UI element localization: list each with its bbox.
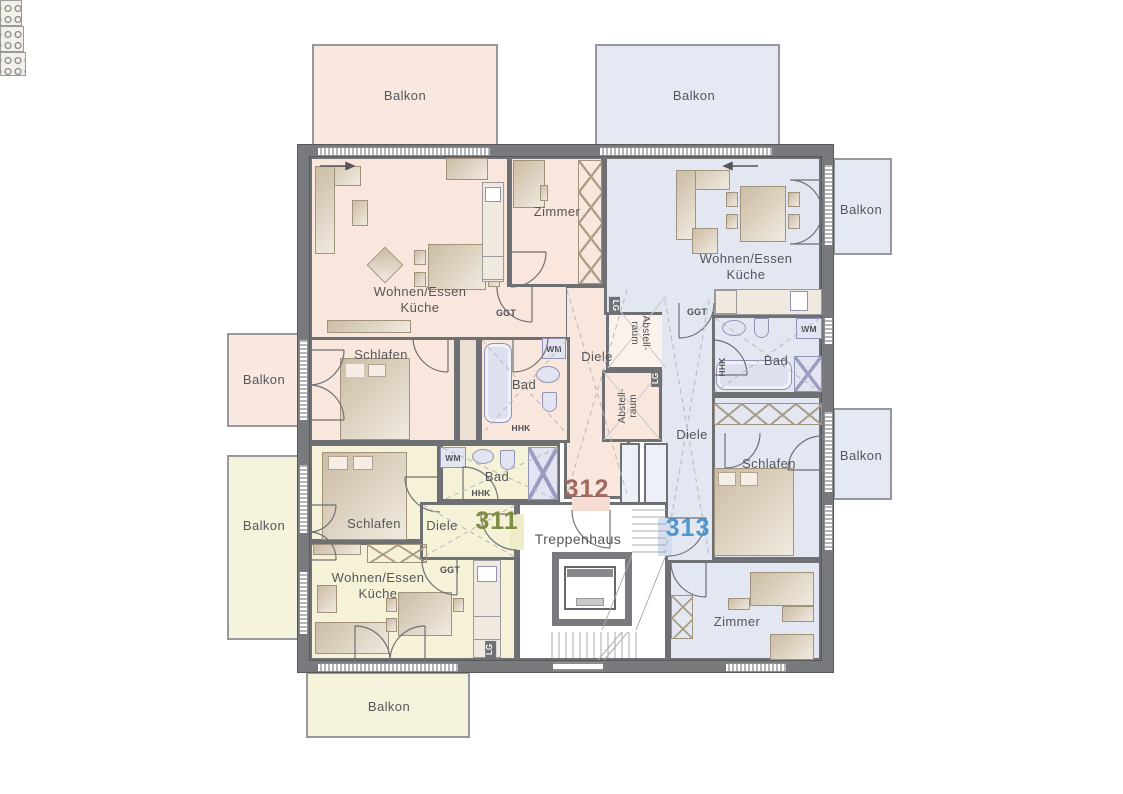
apartment-number-311: 311: [475, 513, 518, 529]
hhk-label-313: HHK: [714, 357, 730, 376]
balcony-label: Balkon: [384, 88, 426, 104]
room-label-bad-312: Bad: [512, 377, 536, 393]
hhk-label-311: HHK: [471, 485, 490, 501]
apartment-number-312: 312: [565, 481, 610, 497]
sliding-door-arrows: [320, 163, 758, 170]
room-label-bad-313: Bad: [764, 353, 788, 369]
balcony-label: Balkon: [840, 448, 882, 464]
abstellraum-label-upper: Abstell- raum: [629, 316, 651, 351]
kueche-line2: Küche: [401, 300, 440, 315]
room-label-schlafen-311: Schlafen: [347, 516, 401, 532]
room-label-wohnen-311: Wohnen/Essen Küche: [332, 570, 425, 602]
room-label-diele-313: Diele: [676, 427, 708, 443]
lg-badge-lower: LG: [651, 370, 662, 387]
balcony-label: Balkon: [673, 88, 715, 104]
ggt-label-311: GGT: [440, 562, 460, 578]
kueche-line2: Küche: [727, 267, 766, 282]
ggt-label-312: GGT: [496, 305, 516, 321]
balcony-label: Balkon: [368, 699, 410, 715]
balcony-label: Balkon: [840, 202, 882, 218]
room-label-bad-311: Bad: [485, 469, 509, 485]
room-label-wohnen-312: Wohnen/Essen Küche: [374, 284, 467, 316]
room-label-diele-312: Diele: [581, 349, 613, 365]
abstell-line2: raum: [629, 321, 640, 345]
wohnen-line1: Wohnen/Essen: [700, 251, 793, 266]
kueche-line2: Küche: [359, 586, 398, 601]
hhk-label-312: HHK: [511, 420, 530, 436]
ggt-label-313: GGT: [687, 304, 707, 320]
room-label-zimmer-312: Zimmer: [534, 204, 580, 220]
room-label-zimmer-313: Zimmer: [714, 614, 760, 630]
room-label-wohnen-313: Wohnen/Essen Küche: [700, 251, 793, 283]
abstell-line2: raum: [628, 394, 639, 418]
lg-badge-upper: LG: [609, 297, 620, 314]
abstell-line1: Abstell-: [617, 389, 628, 424]
floor-plan: WM WM WM: [0, 0, 1123, 794]
balcony-label: Balkon: [243, 372, 285, 388]
room-label-diele-311: Diele: [426, 518, 458, 534]
apartment-number-313: 313: [666, 520, 711, 536]
lg-badge-311: LG: [485, 641, 496, 658]
balcony-label: Balkon: [243, 518, 285, 534]
room-label-schlafen-313: Schlafen: [742, 456, 796, 472]
plan-linework: [0, 0, 1123, 794]
wohnen-line1: Wohnen/Essen: [332, 570, 425, 585]
room-label-schlafen-312: Schlafen: [354, 347, 408, 363]
wohnen-line1: Wohnen/Essen: [374, 284, 467, 299]
room-label-treppenhaus: Treppenhaus: [535, 531, 621, 547]
abstell-line1: Abstell-: [640, 316, 651, 351]
abstellraum-label-lower: Abstell- raum: [617, 389, 639, 424]
